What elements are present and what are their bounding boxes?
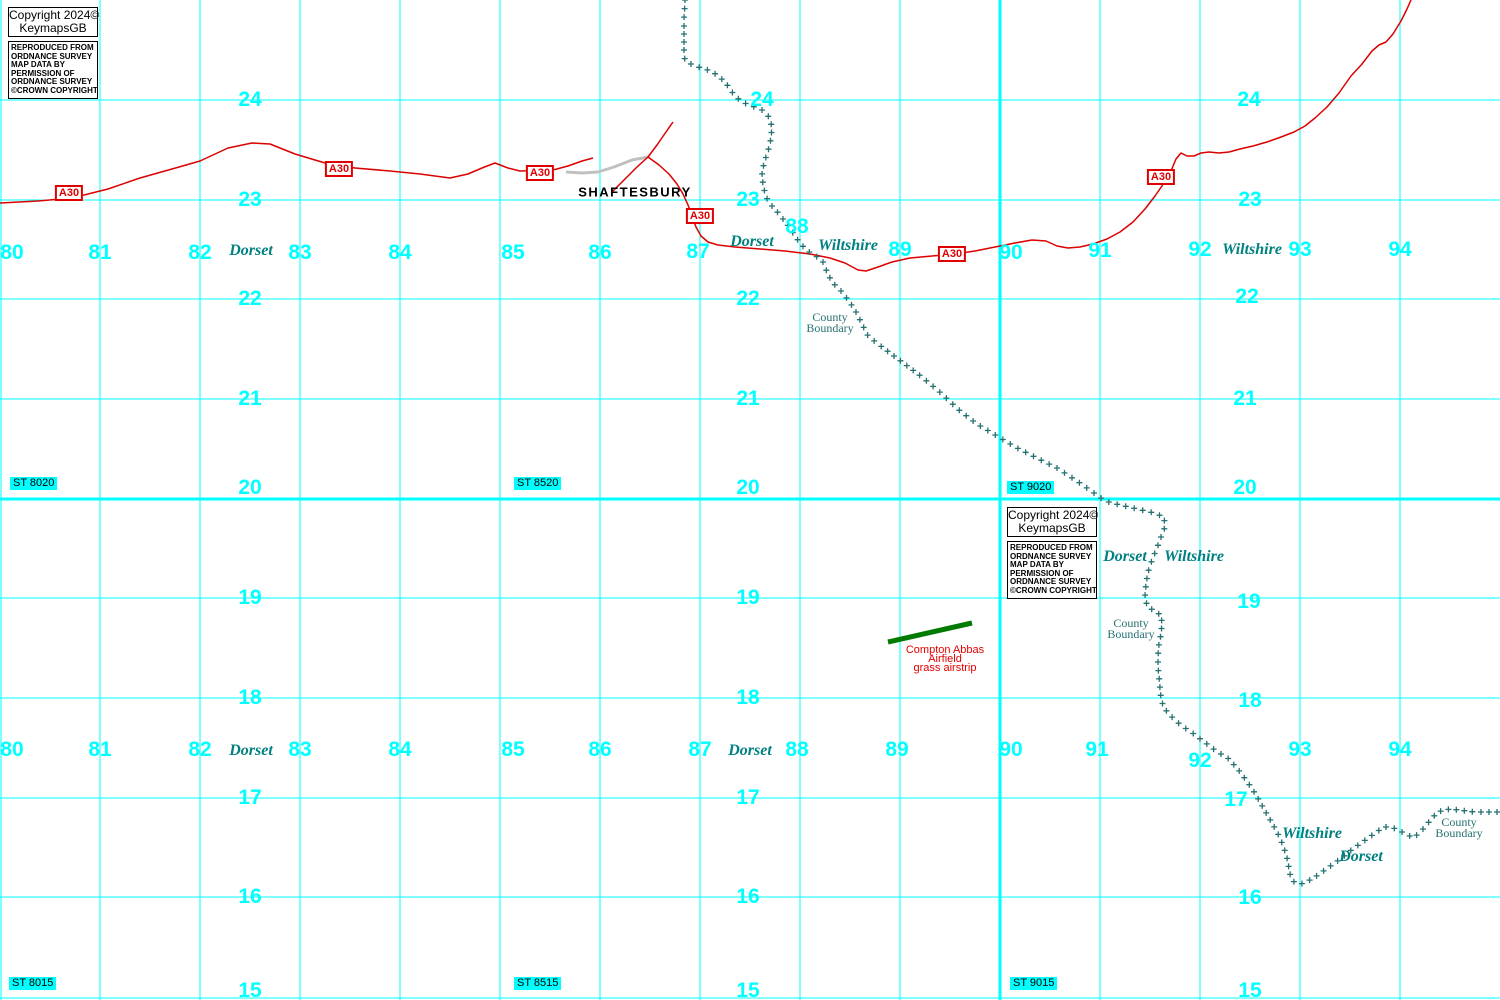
grid-col-label: 83	[288, 738, 311, 762]
region-label-wiltshire: Wiltshire	[1222, 241, 1282, 259]
region-label-wiltshire: Wiltshire	[1164, 548, 1224, 566]
grid-row-label: 24	[1237, 88, 1260, 112]
grid-row-label: 19	[238, 586, 261, 610]
grid-ref-label: ST 9020	[1007, 481, 1054, 494]
grid-row-label: 24	[750, 88, 773, 112]
grid-col-label: 80	[0, 241, 23, 265]
grid-ref-label: ST 8515	[514, 977, 561, 990]
grid-col-label: 85	[501, 738, 524, 762]
grid-ref-label: ST 8520	[514, 477, 561, 490]
grid-row-label: 23	[736, 188, 759, 212]
grid-row-label: 17	[238, 786, 261, 810]
grid-row-label: 24	[238, 88, 261, 112]
region-label-dorset: Dorset	[1103, 548, 1147, 566]
grid-row-label: 17	[736, 786, 759, 810]
grid-col-label: 86	[588, 738, 611, 762]
region-label-dorset: Dorset	[229, 742, 273, 760]
grid-col-label: 85	[501, 241, 524, 265]
grid-ref-label: ST 9015	[1010, 977, 1057, 990]
grid-row-label: 18	[238, 686, 261, 710]
grid-col-label: 80	[0, 738, 23, 762]
grid-col-label: 91	[1088, 239, 1111, 263]
county-boundary-label-line: Boundary	[1435, 828, 1482, 839]
grid-col-label: 84	[388, 241, 411, 265]
a30-badge: A30	[325, 161, 353, 177]
grid-row-label: 20	[238, 476, 261, 500]
grid-ref-label: ST 8020	[10, 477, 57, 490]
grid-col-label: 82	[188, 738, 211, 762]
grid-row-label: 18	[1238, 689, 1261, 713]
region-label-wiltshire: Wiltshire	[818, 237, 878, 255]
a30-badge: A30	[686, 208, 714, 224]
a30-badge: A30	[1147, 169, 1175, 185]
grid-row-label: 15	[736, 979, 759, 1000]
grid-col-label: 94	[1388, 238, 1411, 262]
copyright-box: Copyright 2024© KeymapsGB	[8, 7, 98, 37]
grid-col-label: 89	[888, 238, 911, 262]
region-label-wiltshire: Wiltshire	[1282, 825, 1342, 843]
grid-col-label: 88	[785, 738, 808, 762]
county-boundary-label: CountyBoundary	[1435, 817, 1482, 839]
grid-row-label: 20	[736, 476, 759, 500]
grid-col-label: 94	[1388, 738, 1411, 762]
region-label-dorset: Dorset	[1339, 848, 1383, 866]
grid-ref-label: ST 8015	[9, 977, 56, 990]
grid-row-label: 21	[736, 387, 759, 411]
map: SHAFTESBURY Compton Abbas Airfield grass…	[0, 0, 1500, 1000]
grid-row-label: 22	[736, 287, 759, 311]
a30-badge: A30	[938, 246, 966, 262]
grid-col-label: 88	[785, 215, 808, 239]
copyright-line: KeymapsGB	[9, 22, 97, 35]
grid-row-label: 16	[1238, 886, 1261, 910]
grid-row-label: 16	[736, 885, 759, 909]
grid-row-label: 22	[238, 287, 261, 311]
grid-col-label: 82	[188, 241, 211, 265]
grid-col-label: 87	[686, 240, 709, 264]
a30-badge: A30	[526, 165, 554, 181]
attribution-line: ©CROWN COPYRIGHT	[1010, 587, 1094, 596]
county-boundary-label: CountyBoundary	[806, 312, 853, 334]
grid-col-label: 83	[288, 241, 311, 265]
region-label-dorset: Dorset	[229, 242, 273, 260]
grid-row-label: 19	[736, 586, 759, 610]
grid-col-label: 90	[999, 738, 1022, 762]
grid-col-label: 93	[1288, 238, 1311, 262]
grid-col-label: 84	[388, 738, 411, 762]
county-boundary-label-line: Boundary	[806, 323, 853, 334]
county-boundary-label: CountyBoundary	[1107, 618, 1154, 640]
grid-row-label: 23	[238, 188, 261, 212]
grid-row-label: 23	[1238, 188, 1261, 212]
grid-col-label: 81	[88, 738, 111, 762]
label-layer: SHAFTESBURY Compton Abbas Airfield grass…	[0, 0, 1500, 1000]
grid-col-label: 90	[999, 241, 1022, 265]
grid-col-label: 92	[1188, 749, 1211, 773]
grid-col-label: 86	[588, 241, 611, 265]
grid-col-label: 91	[1085, 738, 1108, 762]
copyright-line: KeymapsGB	[1008, 522, 1096, 535]
airfield-label-line: grass airstrip	[906, 664, 984, 673]
region-label-dorset: Dorset	[730, 233, 774, 251]
attribution-line: ©CROWN COPYRIGHT	[11, 87, 95, 96]
grid-col-label: 92	[1188, 238, 1211, 262]
copyright-group: Copyright 2024© KeymapsGB REPRODUCED FRO…	[1007, 507, 1097, 599]
grid-row-label: 22	[1235, 285, 1258, 309]
grid-row-label: 17	[1224, 788, 1247, 812]
copyright-group: Copyright 2024© KeymapsGB REPRODUCED FRO…	[8, 7, 98, 99]
os-attribution-box: REPRODUCED FROM ORDNANCE SURVEY MAP DATA…	[1007, 541, 1097, 599]
grid-row-label: 18	[736, 686, 759, 710]
county-boundary-label-line: Boundary	[1107, 629, 1154, 640]
os-attribution-box: REPRODUCED FROM ORDNANCE SURVEY MAP DATA…	[8, 41, 98, 99]
grid-col-label: 87	[688, 738, 711, 762]
copyright-box: Copyright 2024© KeymapsGB	[1007, 507, 1097, 537]
grid-row-label: 16	[238, 885, 261, 909]
grid-row-label: 15	[238, 979, 261, 1000]
grid-row-label: 20	[1233, 476, 1256, 500]
grid-row-label: 21	[238, 387, 261, 411]
grid-col-label: 81	[88, 241, 111, 265]
town-label-shaftesbury: SHAFTESBURY	[578, 185, 692, 200]
airfield-label: Compton Abbas Airfield grass airstrip	[906, 646, 984, 673]
region-label-dorset: Dorset	[728, 742, 772, 760]
grid-col-label: 89	[885, 738, 908, 762]
a30-badge: A30	[55, 185, 83, 201]
grid-row-label: 21	[1233, 387, 1256, 411]
grid-row-label: 15	[1238, 979, 1261, 1000]
grid-row-label: 19	[1237, 590, 1260, 614]
grid-col-label: 93	[1288, 738, 1311, 762]
